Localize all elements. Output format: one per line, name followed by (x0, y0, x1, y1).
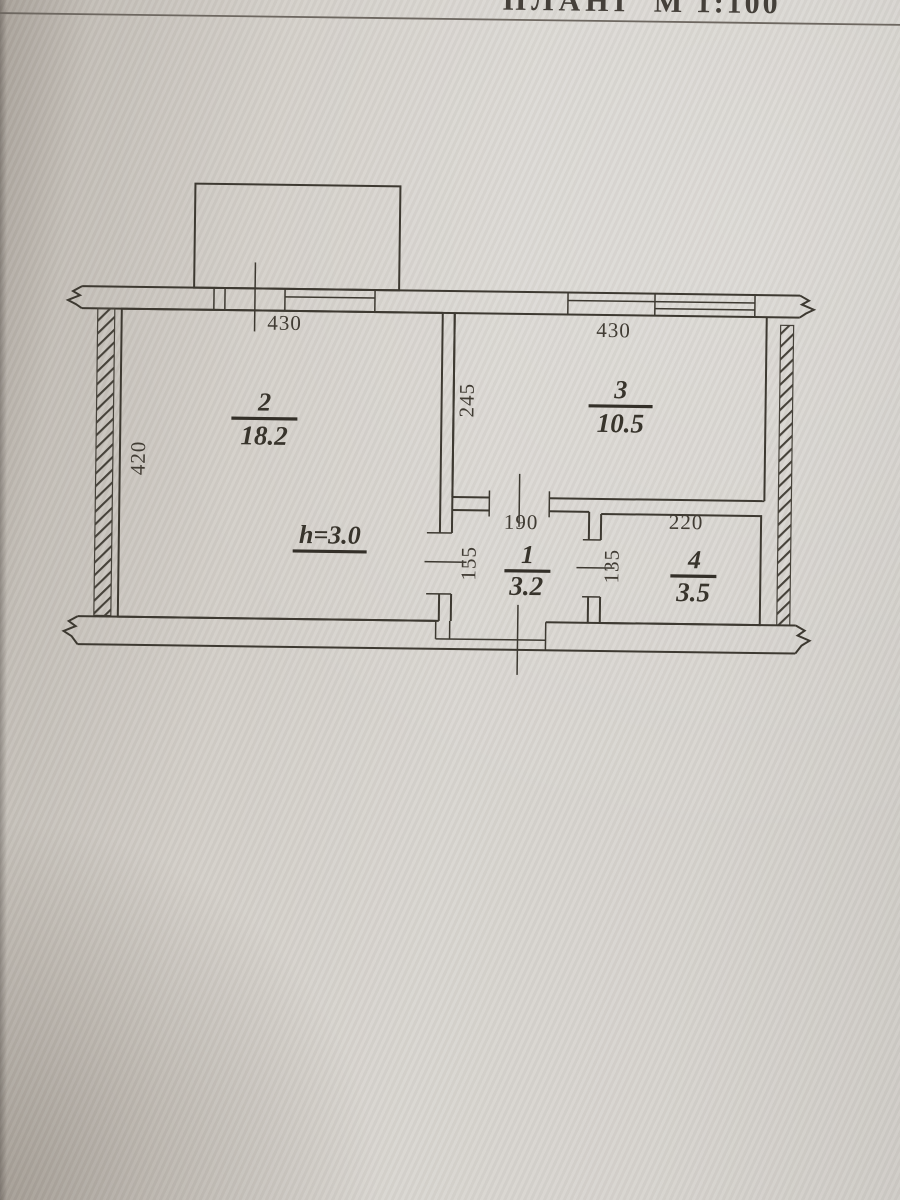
room-3-right-edge (764, 317, 766, 501)
room-2-number: 2 (257, 387, 271, 416)
room-4-area: 3.5 (675, 577, 710, 607)
room-4-height-dim: 135 (599, 549, 623, 584)
balcony-door-axis (255, 262, 256, 331)
room-4-labels: 220 135 4 3.5 (599, 509, 717, 608)
room-1-number: 1 (521, 540, 534, 569)
room-2-height-dim: 420 (126, 441, 150, 476)
room-1-width-dim: 190 (504, 510, 539, 534)
wall-break-bottom-left (63, 616, 77, 644)
room-1-area: 3.2 (508, 571, 543, 601)
room-1-height-dim: 155 (456, 546, 480, 581)
room-4-number: 4 (687, 545, 701, 574)
room-3-number: 3 (613, 375, 627, 404)
scale-label: М 1:100 (654, 0, 781, 20)
room-1-labels: 190 155 1 3.2 (456, 509, 551, 601)
window-room-2 (285, 289, 375, 312)
wall-right-hatched (777, 325, 794, 625)
room-3-fraction-bar (589, 406, 653, 407)
partition-room3-room1 (452, 473, 765, 530)
wall-break-bottom-right (795, 626, 809, 654)
floor-plan-photo: ПЛАНІ М 1:100 (0, 0, 900, 1200)
room-2-labels: 430 420 2 18.2 h=3.0 (125, 309, 370, 552)
balcony-outline (194, 184, 400, 291)
room-2-width-dim: 430 (267, 311, 302, 335)
page-title-fragment: ПЛАНІ (503, 0, 631, 18)
room-2-fraction-bar (231, 418, 297, 419)
room-2-outline (118, 309, 443, 621)
room-2-area: 18.2 (240, 420, 288, 451)
room-3-area: 10.5 (597, 408, 645, 439)
ceiling-height-underline (293, 551, 367, 552)
room-3-labels: 430 245 3 10.5 (454, 316, 654, 439)
room-3-height-dim: 245 (454, 383, 478, 418)
room-3-width-dim: 430 (596, 318, 631, 342)
room-4-width-dim: 220 (669, 510, 704, 534)
wall-break-top-right (800, 296, 814, 318)
window-room-3 (568, 293, 755, 317)
ceiling-height-note: h=3.0 (299, 520, 361, 550)
entrance-door-axis (517, 605, 518, 675)
wall-top (68, 260, 815, 339)
wall-bottom (63, 599, 810, 679)
wall-left-hatched (94, 308, 115, 615)
wall-break-top-left (68, 286, 82, 308)
tilted-page-content: ПЛАНІ М 1:100 (0, 0, 900, 680)
